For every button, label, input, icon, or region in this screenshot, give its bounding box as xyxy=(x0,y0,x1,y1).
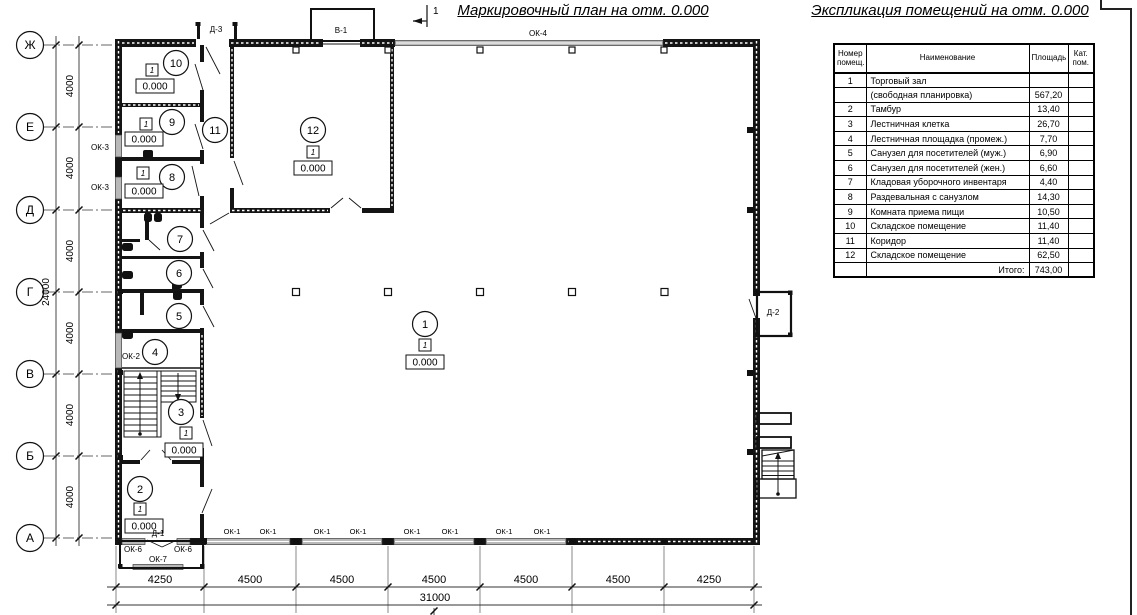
room-level: 0.000 xyxy=(300,164,325,175)
drawing-sheet: Маркировочный план на отм. 0.000 Эксплик… xyxy=(0,0,1137,615)
dim-4000: 4000 xyxy=(65,239,76,262)
cell-num: 11 xyxy=(834,234,866,249)
window-label-ok4: ОК-4 xyxy=(529,29,548,38)
room-cat-mark: 1 xyxy=(423,341,427,350)
window-label-ok1: ОК-1 xyxy=(314,527,331,536)
cell-num: 8 xyxy=(834,190,866,205)
table-row: 9Комната приема пищи10,50 xyxy=(834,204,1094,219)
room-number: 9 xyxy=(169,117,175,129)
cell-area xyxy=(1029,73,1068,88)
total-value: 743,00 xyxy=(1029,263,1068,278)
dim-31000: 31000 xyxy=(420,592,451,604)
dim-4000: 4000 xyxy=(65,321,76,344)
total-label: Итого: xyxy=(866,263,1029,278)
window-label-ok1: ОК-1 xyxy=(404,527,421,536)
window-label-ok2: ОК-2 xyxy=(122,352,141,361)
cell-num: 5 xyxy=(834,146,866,161)
room-number: 10 xyxy=(170,58,182,70)
cell-num: 4 xyxy=(834,131,866,146)
room-cat-mark: 1 xyxy=(184,429,188,438)
door-label-d3: Д-3 xyxy=(210,25,223,34)
dim-col: 4500 xyxy=(238,574,262,586)
axis-row-label: В xyxy=(26,367,34,381)
dim-ticks xyxy=(53,42,83,542)
entrance-porches xyxy=(118,9,793,569)
window-label-ok1: ОК-1 xyxy=(260,527,277,536)
cell-num xyxy=(834,88,866,103)
dim-col: 4500 xyxy=(606,574,630,586)
table-row: 12Складское помещение62,50 xyxy=(834,248,1094,263)
window-label-ok1: ОК-1 xyxy=(442,527,459,536)
cell-cat xyxy=(1068,219,1094,234)
window-label-ok3: ОК-3 xyxy=(91,183,110,192)
room-cat-mark: 1 xyxy=(311,148,315,157)
cell-num xyxy=(834,263,866,278)
table-row: 11Коридор11,40 xyxy=(834,234,1094,249)
room-number: 8 xyxy=(169,172,175,184)
dim-4000: 4000 xyxy=(65,74,76,97)
table-row: 3Лестничная клетка26,70 xyxy=(834,117,1094,132)
cell-cat xyxy=(1068,248,1094,263)
cell-num: 3 xyxy=(834,117,866,132)
cell-area: 6,60 xyxy=(1029,161,1068,176)
room-number: 5 xyxy=(176,311,182,323)
cell-name: Кладовая уборочного инвентаря xyxy=(866,175,1029,190)
sheet-frame-right xyxy=(1130,8,1132,615)
cell-name: Комната приема пищи xyxy=(866,204,1029,219)
cell-num: 2 xyxy=(834,102,866,117)
cell-cat xyxy=(1068,175,1094,190)
axis-row-label: Б xyxy=(26,449,34,463)
loading-platforms xyxy=(756,413,796,498)
table-row: 4Лестничная площадка (промеж.)7,70 xyxy=(834,131,1094,146)
cell-area: 62,50 xyxy=(1029,248,1068,263)
cell-cat xyxy=(1068,204,1094,219)
bottom-dimensions: 4250 4500 4500 4500 4500 4500 4250 31000 xyxy=(107,546,762,613)
cell-area: 567,20 xyxy=(1029,88,1068,103)
col-header-area: Площадь xyxy=(1029,44,1068,73)
room-number: 11 xyxy=(209,125,220,137)
cell-num: 10 xyxy=(834,219,866,234)
axis-row-label: Е xyxy=(26,120,34,134)
cell-cat xyxy=(1068,263,1094,278)
room-level: 0.000 xyxy=(131,135,156,146)
sheet-frame-notch-v xyxy=(1100,0,1102,8)
door-label-v1: В-1 xyxy=(335,26,348,35)
dim-col: 4250 xyxy=(697,574,721,586)
cell-cat xyxy=(1068,73,1094,88)
cell-name: Санузел для посетителей (муж.) xyxy=(866,146,1029,161)
window-label-ok7: ОК-7 xyxy=(149,555,168,564)
room-number: 6 xyxy=(176,268,182,280)
cell-num: 1 xyxy=(834,73,866,88)
cell-cat xyxy=(1068,88,1094,103)
room-number: 2 xyxy=(137,484,143,496)
window-label-ok1: ОК-1 xyxy=(534,527,551,536)
cell-name: Коридор xyxy=(866,234,1029,249)
explication-title: Экспликация помещений на отм. 0.000 xyxy=(808,2,1092,19)
col-header-room-number: Номер помещ. xyxy=(834,44,866,73)
cell-name: Складское помещение xyxy=(866,248,1029,263)
cell-name: Торговый зал xyxy=(866,73,1029,88)
dim-4000: 4000 xyxy=(65,403,76,426)
cell-area: 7,70 xyxy=(1029,131,1068,146)
table-row: (свободная планировка)567,20 xyxy=(834,88,1094,103)
window-label-ok6: ОК-6 xyxy=(124,545,143,554)
room-cat-mark: 1 xyxy=(144,120,148,129)
axis-row-label: Ж xyxy=(24,38,35,52)
table-row: 7Кладовая уборочного инвентаря4,40 xyxy=(834,175,1094,190)
table-total-row: Итого:743,00 xyxy=(834,263,1094,278)
room-number: 4 xyxy=(152,347,158,359)
axis-grid: Ж Е Д Г В Б А xyxy=(17,32,119,552)
table-row: 10Складское помещение11,40 xyxy=(834,219,1094,234)
section-mark-label: 1 xyxy=(433,6,439,17)
axis-row-label: Д xyxy=(26,203,34,217)
col-header-name: Наименование xyxy=(866,44,1029,73)
cell-area: 26,70 xyxy=(1029,117,1068,132)
window-label-ok6: ОК-6 xyxy=(174,545,193,554)
left-dimensions: 4000 4000 4000 4000 4000 4000 24000 xyxy=(41,36,83,546)
cell-name: Тамбур xyxy=(866,102,1029,117)
cell-name: (свободная планировка) xyxy=(866,88,1029,103)
cell-cat xyxy=(1068,146,1094,161)
cell-cat xyxy=(1068,131,1094,146)
window-label-ok1: ОК-1 xyxy=(496,527,513,536)
cell-cat xyxy=(1068,102,1094,117)
cell-num: 7 xyxy=(834,175,866,190)
table-row: 6Санузел для посетителей (жен.)6,60 xyxy=(834,161,1094,176)
cell-area: 10,50 xyxy=(1029,204,1068,219)
dim-col: 4500 xyxy=(514,574,538,586)
cell-cat xyxy=(1068,190,1094,205)
table-header-row: Номер помещ. Наименование Площадь Кат. п… xyxy=(834,44,1094,73)
table-row: 8Раздевальная с санузлом14,30 xyxy=(834,190,1094,205)
dim-4000: 4000 xyxy=(65,485,76,508)
door-label-d2: Д-2 xyxy=(767,308,780,317)
cell-area: 6,90 xyxy=(1029,146,1068,161)
cell-area: 11,40 xyxy=(1029,234,1068,249)
room-level: 0.000 xyxy=(142,82,167,93)
cell-num: 9 xyxy=(834,204,866,219)
table-row: 1Торговый зал xyxy=(834,73,1094,88)
room-level: 0.000 xyxy=(412,358,437,369)
cell-area: 4,40 xyxy=(1029,175,1068,190)
cell-area: 14,30 xyxy=(1029,190,1068,205)
windows xyxy=(116,41,664,570)
dim-col: 4500 xyxy=(422,574,446,586)
cell-cat xyxy=(1068,161,1094,176)
window-label-ok1: ОК-1 xyxy=(350,527,367,536)
room-cat-mark: 1 xyxy=(141,169,145,178)
table-row: 2Тамбур13,40 xyxy=(834,102,1094,117)
explication-table: Номер помещ. Наименование Площадь Кат. п… xyxy=(833,43,1095,278)
cell-num: 6 xyxy=(834,161,866,176)
dim-col: 4250 xyxy=(148,574,172,586)
dim-4000: 4000 xyxy=(65,156,76,179)
cell-cat xyxy=(1068,117,1094,132)
col-header-category: Кат. пом. xyxy=(1068,44,1094,73)
cell-name: Лестничная площадка (промеж.) xyxy=(866,131,1029,146)
room-level: 0.000 xyxy=(171,446,196,457)
dim-col: 4500 xyxy=(330,574,354,586)
room-number: 7 xyxy=(177,234,183,246)
axis-row-label: Г xyxy=(27,285,34,299)
floor-plan: 1 Ж Е Д Г В Б А xyxy=(0,0,810,615)
door-label-d1: Д-1 xyxy=(152,529,165,538)
dim-24000: 24000 xyxy=(41,278,52,306)
cell-cat xyxy=(1068,234,1094,249)
room-cat-mark: 1 xyxy=(150,66,154,75)
room-number: 12 xyxy=(307,125,319,137)
cell-area: 13,40 xyxy=(1029,102,1068,117)
room-number: 1 xyxy=(422,319,428,331)
window-label-ok1: ОК-1 xyxy=(224,527,241,536)
window-label-ok3: ОК-3 xyxy=(91,143,110,152)
sheet-frame-notch xyxy=(1100,8,1132,10)
room-cat-mark: 1 xyxy=(138,505,142,514)
cell-name: Лестничная клетка xyxy=(866,117,1029,132)
room-number: 3 xyxy=(178,407,184,419)
cell-name: Раздевальная с санузлом xyxy=(866,190,1029,205)
axis-row-label: А xyxy=(26,531,34,545)
cell-name: Санузел для посетителей (жен.) xyxy=(866,161,1029,176)
table-row: 5Санузел для посетителей (муж.)6,90 xyxy=(834,146,1094,161)
cell-area: 11,40 xyxy=(1029,219,1068,234)
cell-name: Складское помещение xyxy=(866,219,1029,234)
section-mark-top: 1 xyxy=(413,5,439,27)
cell-num: 12 xyxy=(834,248,866,263)
room-level: 0.000 xyxy=(131,187,156,198)
